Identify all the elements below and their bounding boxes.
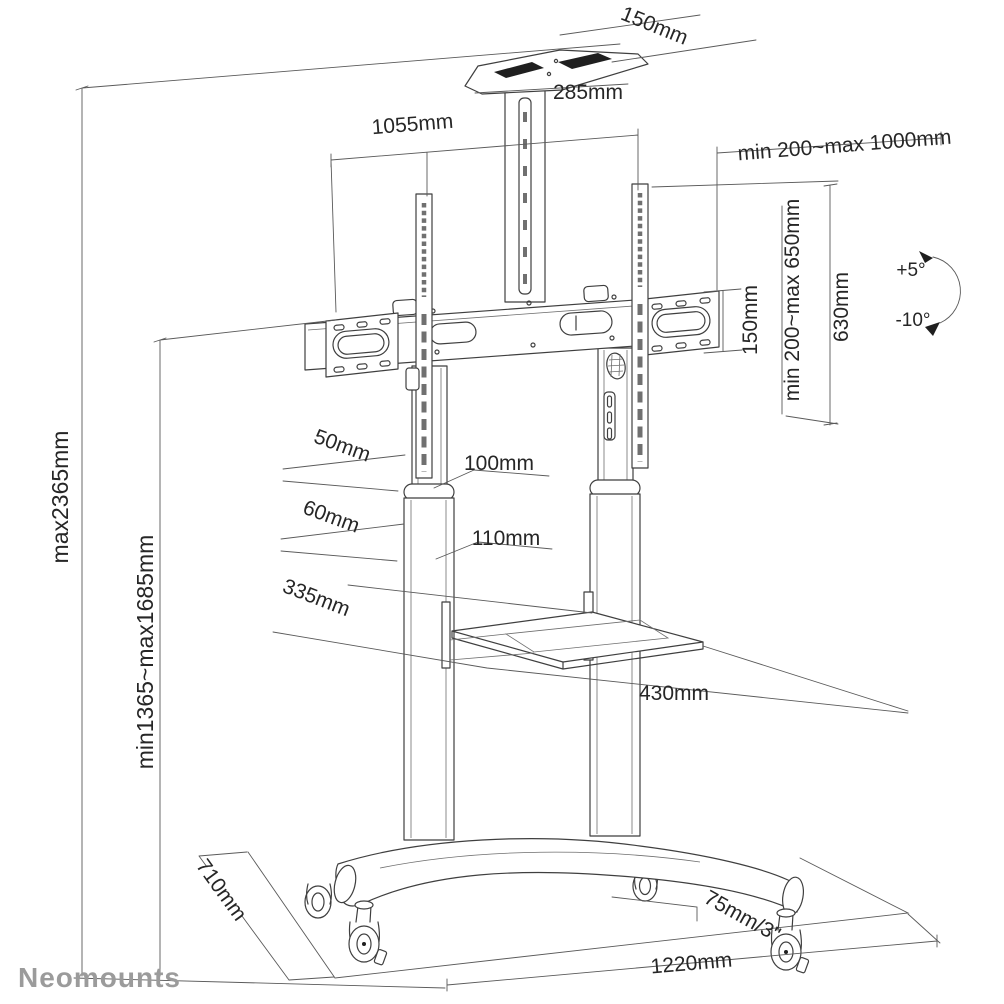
label-bracket-rail-height: 630mm <box>830 272 853 342</box>
label-upper-column-width: 50mm <box>311 425 374 467</box>
label-av-shelf-depth: 335mm <box>280 575 354 622</box>
label-vesa-plate-height: 150mm <box>739 285 762 355</box>
label-lower-column-depth: 110mm <box>472 527 540 550</box>
label-crossbar-width: 1055mm <box>371 110 454 139</box>
caster-rear-left <box>305 884 332 918</box>
label-top-shelf-width: 285mm <box>553 81 623 104</box>
label-lower-column-width: 60mm <box>300 496 363 538</box>
brand-logo: Neomounts <box>18 962 181 993</box>
label-screen-center-height: min1365~max1685mm <box>132 535 158 770</box>
label-base-width: 1220mm <box>650 949 733 979</box>
label-vesa-width-range: min 200~max 1000mm <box>737 126 952 166</box>
vesa-rail-right <box>632 184 648 468</box>
caster-front-right <box>771 909 809 973</box>
tv-floor-stand-dimension-diagram: 150mm 285mm 1055mm min 200~max 1000mm 15… <box>0 0 1004 1004</box>
label-top-shelf-depth: 150mm <box>618 2 692 50</box>
label-base-depth: 710mm <box>191 855 251 925</box>
label-av-shelf-width: 430mm <box>639 682 709 705</box>
lifting-columns <box>404 348 640 840</box>
dimension-labels: 150mm 285mm 1055mm min 200~max 1000mm 15… <box>47 2 952 978</box>
label-upper-column-depth: 100mm <box>464 452 534 475</box>
vesa-plate-right <box>645 291 719 355</box>
label-tilt-up: +5° <box>896 260 925 281</box>
av-shelf <box>442 592 703 669</box>
label-max-total-height: max2365mm <box>47 431 73 564</box>
label-tilt-down: -10° <box>895 310 930 331</box>
caster-front-left <box>349 901 387 965</box>
label-vesa-height-range: min 200~max 650mm <box>781 199 804 402</box>
vesa-plate-left <box>326 313 398 377</box>
